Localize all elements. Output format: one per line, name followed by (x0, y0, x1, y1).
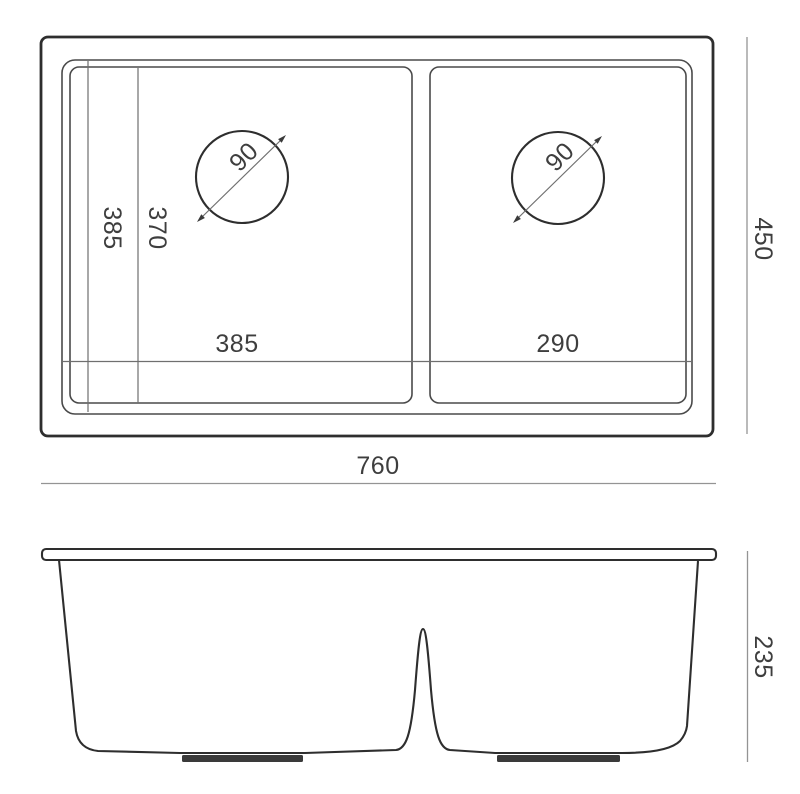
side-view-flange (42, 549, 716, 560)
sink-top-view: 90 90 385 370 385 290 760 450 (41, 37, 777, 484)
dim-label-overall-width: 760 (356, 452, 399, 480)
dim-label-bowl-depth-outer: 385 (98, 206, 126, 249)
sink-technical-drawing: 90 90 385 370 385 290 760 450 (0, 0, 800, 794)
dim-label-right-drain-diameter: 90 (540, 137, 580, 177)
left-bowl-foot-pad (182, 755, 303, 762)
dim-label-right-bowl-width: 290 (536, 330, 579, 358)
left-drain: 90 (196, 131, 288, 223)
dim-label-overall-depth: 450 (749, 217, 777, 260)
right-bowl-foot-pad (497, 755, 620, 762)
right-drain: 90 (512, 132, 604, 224)
sink-side-view: 235 (42, 549, 777, 762)
drawing-svg: 90 90 385 370 385 290 760 450 (0, 0, 800, 794)
dim-label-side-height: 235 (749, 635, 777, 678)
dim-label-bowl-depth-inner: 370 (143, 206, 171, 249)
dim-label-left-drain-diameter: 90 (224, 137, 264, 177)
dim-label-left-bowl-width: 385 (215, 330, 258, 358)
sink-outer-edge (41, 37, 713, 436)
side-view-body-profile (59, 560, 698, 753)
